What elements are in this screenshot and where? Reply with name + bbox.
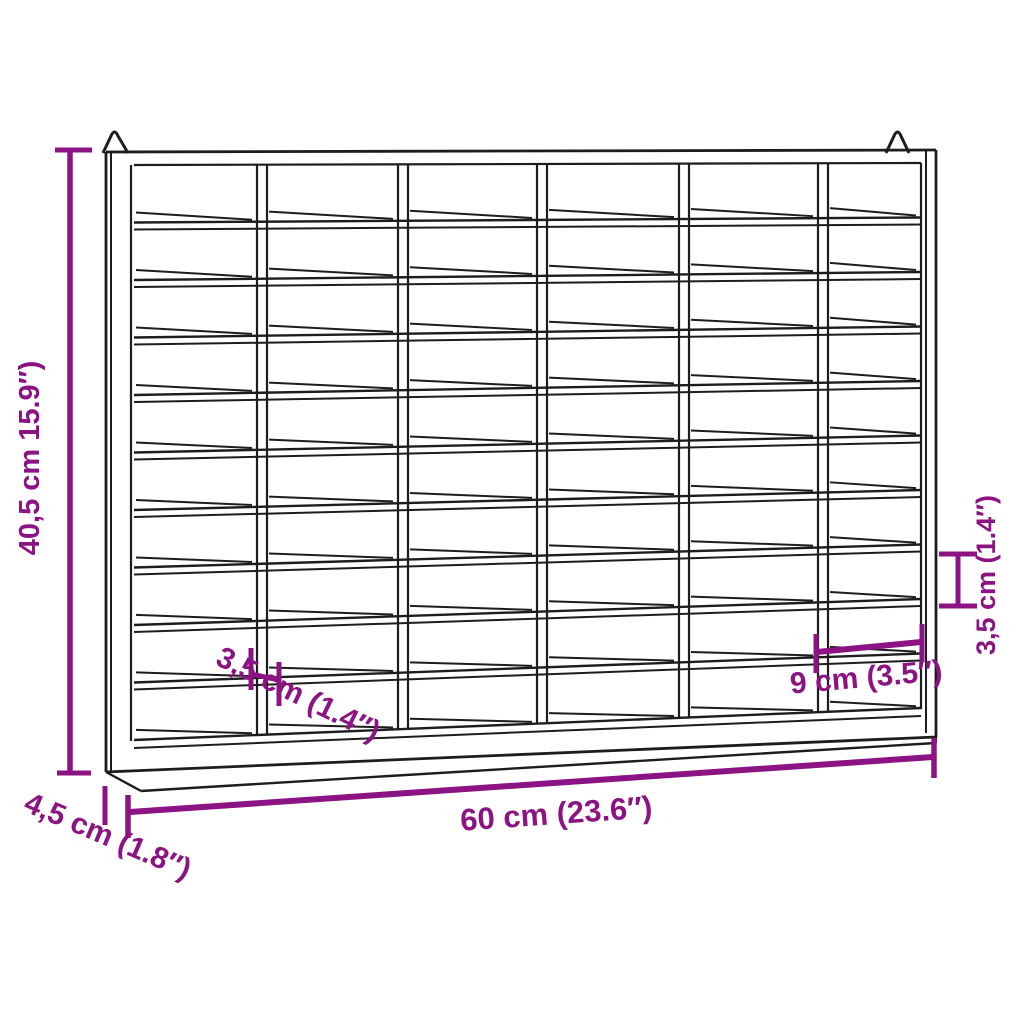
drawing-line xyxy=(106,150,936,152)
dimension-diagram: 40,5 cm 15.9″) 60 cm (23.6″) 4,5 cm (1.8… xyxy=(0,0,1024,1024)
height-dimension-label: 40,5 cm 15.9″) xyxy=(14,361,46,555)
compartment-height-right-label: 3,5 cm (1.4″) xyxy=(971,495,1001,655)
